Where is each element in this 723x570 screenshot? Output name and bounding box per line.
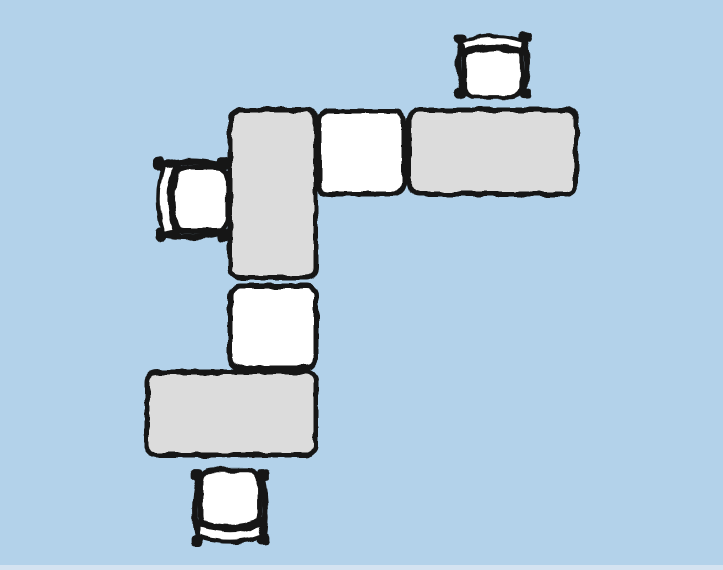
desk-top-right — [409, 110, 576, 194]
desk-left-vertical — [230, 110, 316, 278]
bottom-strip — [0, 565, 723, 570]
chair-top-right — [455, 32, 532, 99]
desk-middle — [230, 286, 316, 368]
floor-plan-svg — [0, 0, 723, 570]
chair-bottom — [191, 469, 270, 547]
floor-plan-canvas — [0, 0, 723, 570]
desk-top-middle — [319, 111, 404, 194]
chair-left — [153, 157, 229, 241]
desk-bottom — [147, 372, 316, 455]
